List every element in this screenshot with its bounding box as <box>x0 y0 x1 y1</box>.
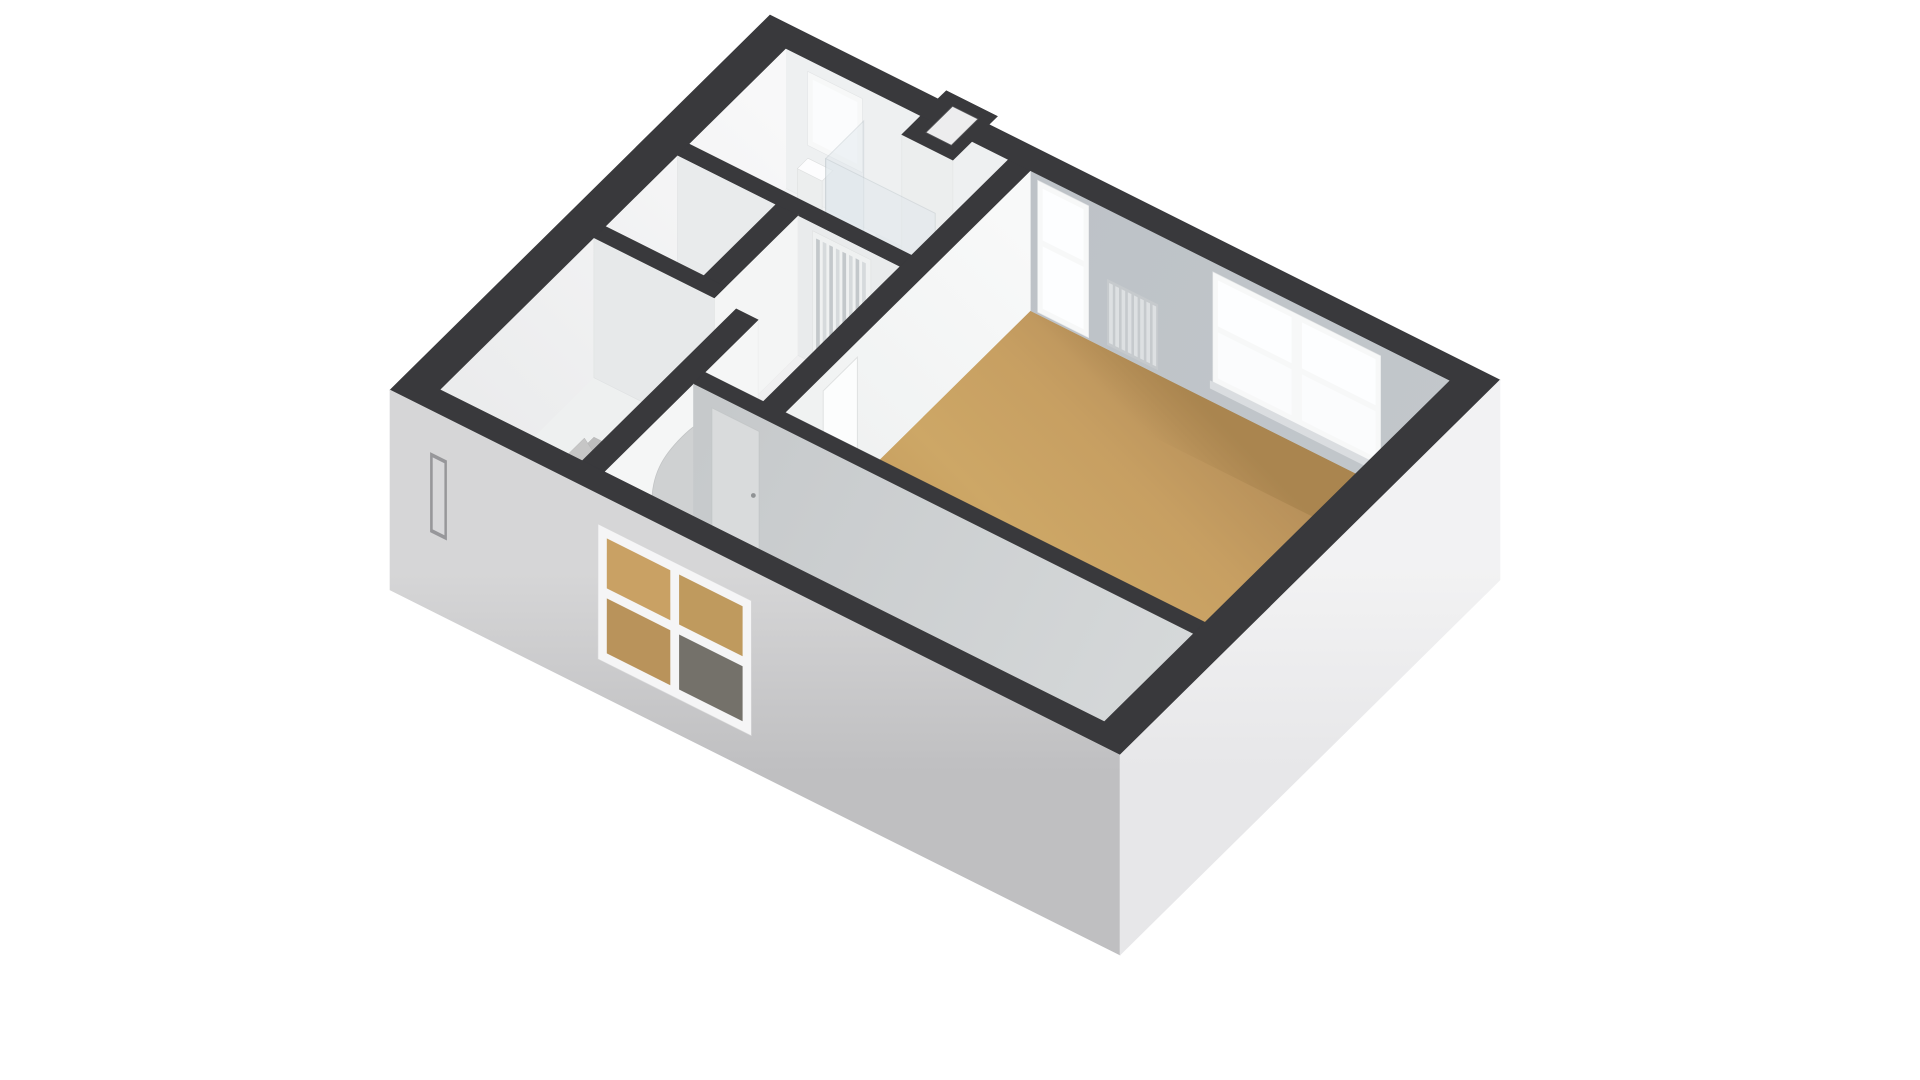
radiator-fin <box>1146 302 1150 364</box>
floorplan-3d <box>0 0 1920 1080</box>
floorplan-stage <box>0 0 1920 1080</box>
radiator-fin <box>1122 289 1126 351</box>
radiator-fin <box>1109 283 1113 345</box>
radiator-fin <box>1140 299 1144 361</box>
radiator-fin <box>1134 295 1138 357</box>
stair-slit-window-inner <box>433 457 445 535</box>
small-bedroom-door-handle <box>751 493 756 498</box>
louvered-door-slat <box>816 239 820 363</box>
radiator-fin <box>1153 305 1157 367</box>
radiator-fin <box>1115 286 1119 348</box>
radiator-fin <box>1128 292 1132 354</box>
